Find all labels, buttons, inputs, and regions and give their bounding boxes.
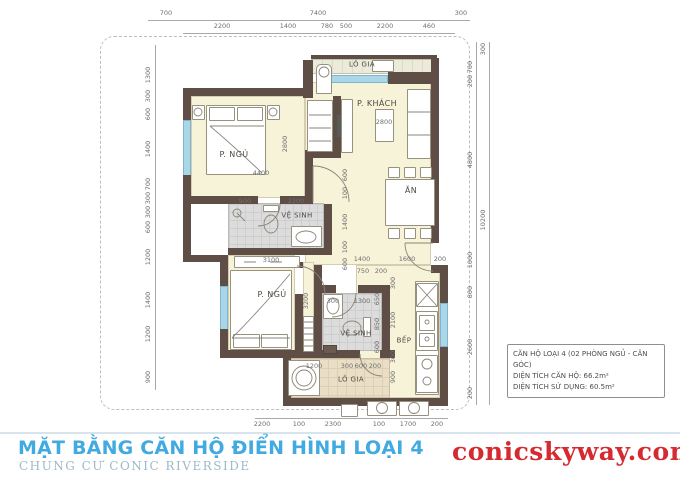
dim-label: 460 xyxy=(423,23,435,30)
dim-label: 2600 xyxy=(467,339,474,356)
dim-label: 200 xyxy=(375,268,387,275)
dim-label: 300 xyxy=(480,43,487,55)
room-label-bath2: VỆ SINH xyxy=(340,331,371,338)
dim-label: 1400 xyxy=(354,256,371,263)
vanity1-symbol xyxy=(291,226,322,247)
dim-label: 4800 xyxy=(467,152,474,169)
bed1-pillow xyxy=(237,107,263,121)
dim-label: 600 xyxy=(374,341,381,353)
window-kitchen xyxy=(440,303,448,347)
dim-label: 780 xyxy=(321,23,333,30)
ac-unit-symbol xyxy=(316,64,332,94)
dim-label: 1400 xyxy=(342,214,349,231)
chair-symbol xyxy=(404,228,416,239)
window-bedroom2 xyxy=(220,286,228,330)
wall-segment xyxy=(183,175,191,262)
dim-label: 1200 xyxy=(306,363,323,370)
dim-label: 1200 xyxy=(145,326,152,343)
chair-symbol xyxy=(388,167,400,178)
loggia1-bench-symbol xyxy=(372,60,394,72)
dim-label: 750 xyxy=(357,268,369,275)
dim-label: 2100 xyxy=(390,312,397,329)
dim-label: 600 xyxy=(145,108,152,120)
wall-segment xyxy=(305,150,313,204)
dim-label: 1700 xyxy=(400,421,417,428)
dim-label: 1600 xyxy=(399,256,416,263)
tv-symbol xyxy=(337,115,341,137)
chair-symbol xyxy=(420,167,432,178)
room-label-bedroom2: P. NGỦ xyxy=(257,291,286,299)
dim-label: 3100 xyxy=(263,257,280,264)
room-label-bedroom1: P. NGỦ xyxy=(219,151,248,159)
info-line-usable: DIỆN TÍCH SỬ DỤNG: 60.5m² xyxy=(513,382,659,393)
dim-label: 650 xyxy=(374,293,381,305)
sink-basin xyxy=(419,333,435,347)
shelf-symbol xyxy=(303,316,314,352)
dim-label: 300 xyxy=(390,277,397,289)
dim-label: 2200 xyxy=(288,198,305,205)
bed2-pillow xyxy=(261,334,288,348)
dim-line-top-inner xyxy=(183,33,455,34)
dim-label: 1400 xyxy=(145,292,152,309)
dim-label: 1200 xyxy=(145,249,152,266)
dim-label: 1400 xyxy=(145,141,152,158)
dim-label: 200 xyxy=(369,363,381,370)
dim-label: 700 xyxy=(160,10,172,17)
heater-box-symbol xyxy=(341,404,358,417)
loggia1-railing xyxy=(311,55,437,59)
dim-label: 7400 xyxy=(310,10,327,17)
dim-label: 4400 xyxy=(253,170,270,177)
dim-label: 300 xyxy=(145,90,152,102)
dim-label: 1000 xyxy=(467,252,474,269)
dim-label: 2300 xyxy=(325,421,342,428)
dim-label: 300 xyxy=(327,298,339,305)
website-watermark: conicskyway.com xyxy=(452,437,680,466)
dim-label: 500 xyxy=(340,23,352,30)
page-subtitle: CHUNG CƯ CONIC RIVERSIDE xyxy=(19,459,251,473)
dim-label: 800 xyxy=(467,286,474,298)
toilet1-tank xyxy=(263,205,279,212)
room-label-kitchen: BẾP xyxy=(397,338,412,345)
footer-divider xyxy=(0,432,680,434)
nightstand-symbol xyxy=(192,105,205,120)
dim-label: 600 xyxy=(342,258,349,270)
dim-line-bottom xyxy=(255,418,448,419)
sofa-symbol xyxy=(407,89,431,159)
page-title: MẶT BẰNG CĂN HỘ ĐIỂN HÌNH LOẠI 4 xyxy=(18,437,424,459)
dim-label: 900 xyxy=(239,198,251,205)
dim-label: 2800 xyxy=(376,119,393,126)
info-line-area: DIỆN TÍCH CĂN HỘ: 66.2m² xyxy=(513,371,659,382)
stove-symbol xyxy=(416,355,438,393)
dim-label: 1300 xyxy=(145,67,152,84)
dim-label: 600 xyxy=(145,221,152,233)
dim-label: 200 xyxy=(467,387,474,399)
dim-line-right-inner xyxy=(476,42,477,405)
dim-label: 2200 xyxy=(377,23,394,30)
dim-line-right-outer xyxy=(489,42,490,405)
wall-segment xyxy=(440,347,448,406)
dim-label: 700 xyxy=(145,178,152,190)
wall-segment xyxy=(388,72,433,84)
wall-segment xyxy=(314,285,336,293)
wall-segment xyxy=(183,88,311,96)
wall-segment xyxy=(303,60,313,98)
wall-segment xyxy=(314,293,322,358)
chair-symbol xyxy=(420,228,432,239)
dim-label: 300 xyxy=(341,363,353,370)
dim-label: 700 xyxy=(467,61,474,73)
dim-label: 100 xyxy=(373,421,385,428)
dim-label: 2200 xyxy=(214,23,231,30)
wall-segment xyxy=(431,265,448,273)
room-label-loggia2: LÔ GIA xyxy=(338,377,364,384)
dim-label: 1300 xyxy=(354,298,371,305)
apartment-info-box: CĂN HỘ LOẠI 4 (02 PHÒNG NGỦ - CĂN GÓC) D… xyxy=(507,344,665,398)
room-label-dining: ĂN xyxy=(405,187,417,195)
dim-label: 2200 xyxy=(254,421,271,428)
tv-cabinet-symbol xyxy=(341,99,353,153)
dim-line-top-outer xyxy=(148,20,470,21)
dim-label: 3200 xyxy=(303,293,310,310)
chair-symbol xyxy=(388,228,400,239)
dim-label: 300 xyxy=(455,10,467,17)
dim-label: 300 xyxy=(145,192,152,204)
dim-label: 300 xyxy=(145,206,152,218)
dim-label: 100 xyxy=(342,241,349,253)
dim-label: 200 xyxy=(434,256,446,263)
ac-condenser-symbol xyxy=(399,401,429,416)
dim-label: 300 xyxy=(390,351,397,363)
dim-label: 10200 xyxy=(480,210,487,231)
dim-label: 600 xyxy=(342,169,349,181)
bed2-pillow xyxy=(233,334,260,348)
wall-segment xyxy=(324,204,332,252)
room-label-living: P. KHÁCH xyxy=(357,100,397,108)
bed1-pillow xyxy=(209,107,235,121)
dim-label: 200 xyxy=(431,421,443,428)
dim-label: 900 xyxy=(145,371,152,383)
dim-label: 2800 xyxy=(282,136,289,153)
dim-label: 600 xyxy=(355,363,367,370)
room-label-bath1: VỆ SINH xyxy=(281,213,312,220)
room-label-loggia1: LÔ GIA xyxy=(349,62,375,69)
dim-label: 100 xyxy=(293,421,305,428)
window-bedroom1 xyxy=(183,120,191,177)
chair-symbol xyxy=(404,167,416,178)
wall-segment xyxy=(228,248,332,255)
floor-plan-page: P. NGỦ P. KHÁCH LÔ GIA VỆ SINH ĂN P. NGỦ… xyxy=(0,0,680,480)
dim-label: 850 xyxy=(374,318,381,330)
sink-basin xyxy=(419,315,435,331)
dim-line-left xyxy=(155,45,156,390)
dim-label: 1400 xyxy=(280,23,297,30)
dim-label: 900 xyxy=(390,371,397,383)
bath2-cabinet xyxy=(323,345,337,354)
info-line-type: CĂN HỘ LOẠI 4 (02 PHÒNG NGỦ - CĂN GÓC) xyxy=(513,349,659,371)
wall-segment xyxy=(183,88,191,122)
wall-segment xyxy=(220,255,228,287)
kitchen-hob-symbol xyxy=(416,283,438,307)
dim-label: 200 xyxy=(467,75,474,87)
nightstand-symbol xyxy=(267,105,280,120)
wardrobe-symbol xyxy=(307,100,333,152)
ac-condenser-symbol xyxy=(367,401,397,416)
dim-label: 100 xyxy=(342,187,349,199)
